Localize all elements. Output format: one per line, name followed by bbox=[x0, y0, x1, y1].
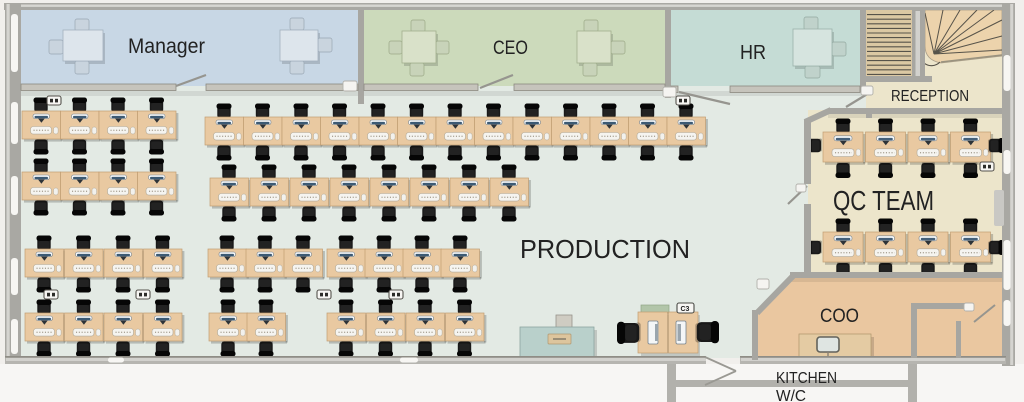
svg-text:W/C: W/C bbox=[776, 388, 806, 402]
svg-text:QC TEAM: QC TEAM bbox=[833, 185, 934, 216]
svg-text:CEO: CEO bbox=[493, 38, 528, 59]
svg-text:COO: COO bbox=[820, 306, 859, 327]
svg-text:C3: C3 bbox=[681, 306, 690, 313]
svg-text:RECEPTION: RECEPTION bbox=[891, 88, 969, 105]
svg-text:HR: HR bbox=[740, 42, 766, 64]
svg-text:KITCHEN: KITCHEN bbox=[776, 370, 837, 387]
svg-text:PRODUCTION: PRODUCTION bbox=[520, 234, 690, 264]
svg-text:Manager: Manager bbox=[128, 35, 205, 58]
